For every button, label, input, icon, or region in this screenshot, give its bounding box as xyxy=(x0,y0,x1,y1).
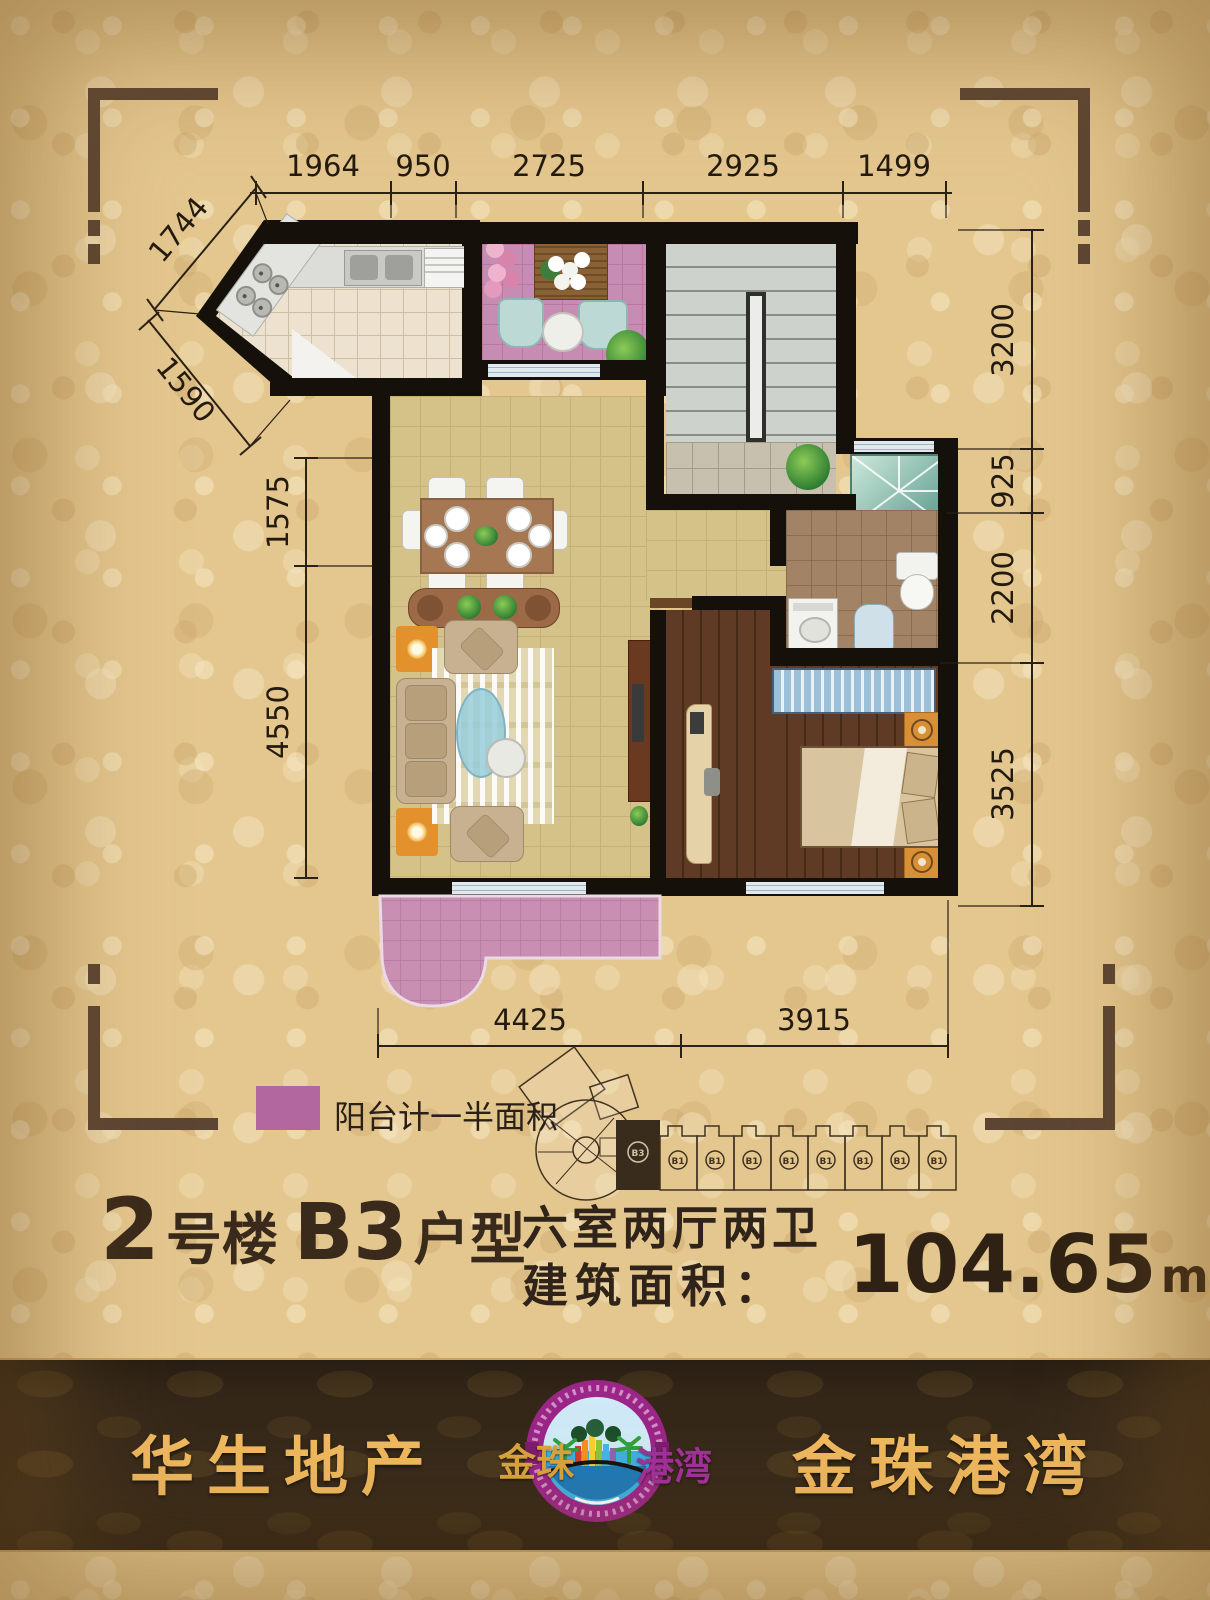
dim-right-1: 3200 xyxy=(986,303,1020,377)
area-unit-m: m xyxy=(1161,1249,1209,1303)
dim-right-3: 2200 xyxy=(986,551,1020,625)
dim-left-2: 4550 xyxy=(261,685,295,759)
poster: 1964 950 2725 2925 1499 1744 1590 1575 4… xyxy=(0,0,1210,1600)
dim-top-5: 1499 xyxy=(857,149,931,183)
dim-top-4: 2925 xyxy=(706,149,780,183)
dim-diag-upper: 1744 xyxy=(142,190,215,268)
footer-band: 华生地产 金珠港湾 xyxy=(0,1360,1210,1550)
unit-code: B3 xyxy=(294,1188,408,1278)
keyplan-unit-label: B1 xyxy=(671,1157,684,1167)
building-number: 2 xyxy=(100,1180,160,1280)
area-value-group: 104.65 m2 xyxy=(848,1218,1210,1311)
dim-right-2: 925 xyxy=(986,453,1020,508)
dim-diag-lower: 1590 xyxy=(149,350,222,429)
dim-top-2: 950 xyxy=(395,149,450,183)
brand-left: 华生地产 xyxy=(130,1416,438,1508)
keyplan-unit-label: B1 xyxy=(745,1157,758,1167)
keyplan-unit-label: B3 xyxy=(631,1149,644,1159)
keyplan-unit-label: B1 xyxy=(893,1157,906,1167)
dim-bottom-2: 3915 xyxy=(777,1003,851,1037)
dim-top-1: 1964 xyxy=(286,149,360,183)
dim-top-3: 2725 xyxy=(512,149,586,183)
logo-text-left: 金珠 xyxy=(498,1432,574,1487)
dim-left-1: 1575 xyxy=(261,475,295,549)
area-value: 104.65 xyxy=(848,1218,1157,1311)
area-unit: m2 xyxy=(1161,1249,1210,1303)
building-label: 号楼 xyxy=(166,1195,278,1276)
balcony xyxy=(380,896,660,1006)
legend-label: 阳台计一半面积 xyxy=(334,1092,558,1138)
keyplan-unit-label: B1 xyxy=(708,1157,721,1167)
keyplan-unit-label: B1 xyxy=(856,1157,869,1167)
dim-right-4: 3525 xyxy=(986,747,1020,821)
keyplan-unit-label: B1 xyxy=(782,1157,795,1167)
legend-swatch xyxy=(256,1086,320,1130)
rooms-spec: 六室两厅两卫 xyxy=(522,1192,822,1258)
keyplan: B3 B1 B1 B1 B1 B1 B1 B1 B1 xyxy=(519,1047,956,1200)
logo-text-right: 港湾 xyxy=(636,1436,712,1491)
keyplan-unit-label: B1 xyxy=(930,1157,943,1167)
unit-label: 户型 xyxy=(414,1195,526,1276)
brand-right: 金珠港湾 xyxy=(792,1416,1100,1508)
keyplan-unit-label: B1 xyxy=(819,1157,832,1167)
dim-bottom-1: 4425 xyxy=(493,1003,567,1037)
unit-title: 2 号楼 B3 户型 xyxy=(100,1180,526,1280)
area-label: 建筑面积： xyxy=(522,1250,787,1316)
